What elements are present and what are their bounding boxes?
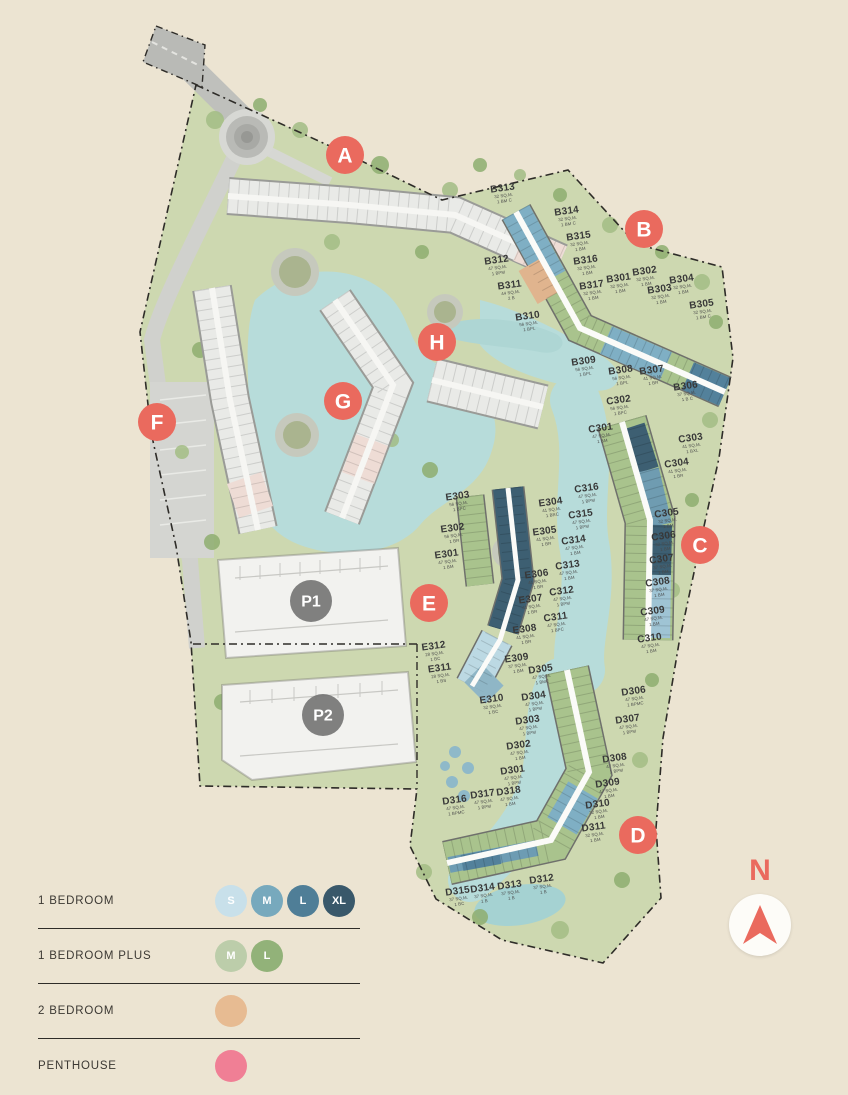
building-marker-g[interactable]: G [324, 382, 362, 420]
legend-row-1-bedroom-plus: 1 BEDROOM PLUSML [38, 929, 360, 984]
legend-swatches [215, 1050, 247, 1082]
north-arrow-icon [729, 894, 791, 956]
building-marker-d[interactable]: D [619, 816, 657, 854]
unit-type: 1 B [508, 895, 515, 901]
legend-label: PENTHOUSE [38, 1060, 117, 1072]
marker-letter: D [630, 825, 645, 848]
legend-swatch-l: L [287, 885, 319, 917]
building-h-footprint [432, 380, 543, 407]
legend-swatches: SMLXL [215, 885, 355, 917]
legend-label: 1 BEDROOM [38, 895, 114, 907]
legend-swatch-m: M [251, 885, 283, 917]
legend-row-1-bedroom: 1 BEDROOMSMLXL [38, 874, 360, 929]
legend-swatch [215, 1050, 247, 1082]
marker-letter: P2 [313, 708, 333, 725]
marker-letter: G [335, 391, 351, 414]
marker-letter: F [151, 412, 164, 435]
legend-row-penthouse: PENTHOUSE [38, 1039, 360, 1093]
parking-marker-p1[interactable]: P1 [290, 580, 332, 622]
unit-type: 1 B [540, 889, 547, 895]
parking-marker-p2[interactable]: P2 [302, 694, 344, 736]
north-compass: N [724, 856, 796, 956]
legend-label: 2 BEDROOM [38, 1005, 114, 1017]
legend-label: 1 BEDROOM PLUS [38, 950, 151, 962]
marker-letter: A [337, 145, 352, 168]
legend-swatch-m: M [215, 940, 247, 972]
unit-type: 1 B [481, 898, 488, 904]
marker-letter: E [422, 593, 436, 616]
building-marker-c[interactable]: C [681, 526, 719, 564]
legend-swatch [215, 995, 247, 1027]
building-marker-h[interactable]: H [418, 323, 456, 361]
legend-swatches [215, 995, 247, 1027]
building-marker-b[interactable]: B [625, 210, 663, 248]
marker-letter: P1 [301, 594, 321, 611]
building-marker-a[interactable]: A [326, 136, 364, 174]
legend-row-2-bedroom: 2 BEDROOM [38, 984, 360, 1039]
legend-swatch-l: L [251, 940, 283, 972]
legend-swatch-xl: XL [323, 885, 355, 917]
marker-letter: C [692, 535, 707, 558]
unit-type: 2 B [508, 295, 515, 301]
entrance-road [143, 26, 205, 87]
legend-swatch-s: S [215, 885, 247, 917]
legend: 1 BEDROOMSMLXL1 BEDROOM PLUSML2 BEDROOMP… [38, 874, 360, 1093]
north-label: N [724, 856, 796, 886]
building-marker-f[interactable]: F [138, 403, 176, 441]
legend-swatches: ML [215, 940, 283, 972]
marker-letter: H [429, 332, 444, 355]
marker-letter: B [636, 219, 651, 242]
building-marker-e[interactable]: E [410, 584, 448, 622]
